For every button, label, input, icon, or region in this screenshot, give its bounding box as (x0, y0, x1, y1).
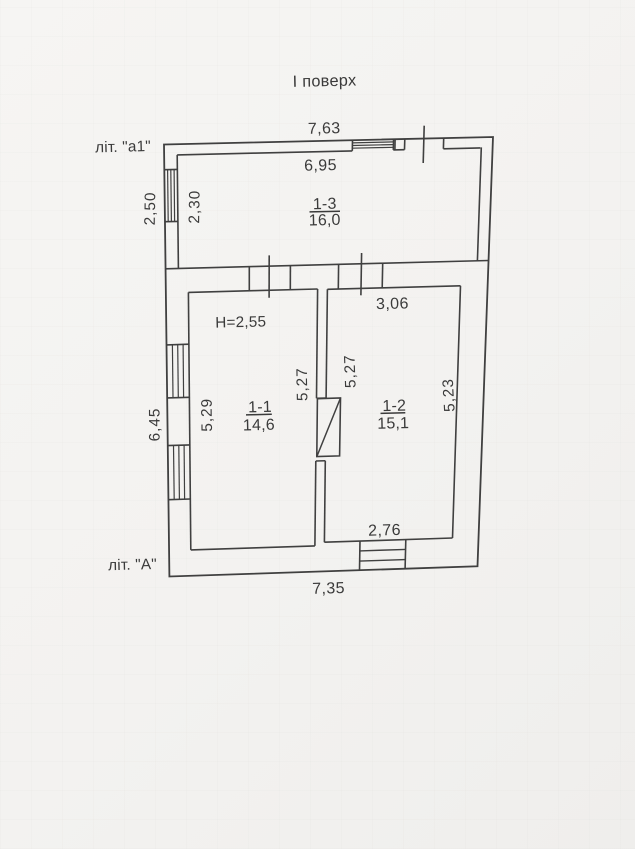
svg-text:3,06: 3,06 (376, 295, 409, 313)
svg-text:І поверх: І поверх (292, 71, 356, 90)
svg-text:15,1: 15,1 (377, 415, 409, 433)
svg-text:2,76: 2,76 (368, 522, 401, 540)
svg-text:5,23: 5,23 (440, 378, 459, 413)
svg-text:2,50: 2,50 (142, 191, 159, 225)
svg-text:5,27: 5,27 (294, 367, 312, 401)
svg-text:5,27: 5,27 (341, 354, 359, 388)
svg-text:6,45: 6,45 (147, 408, 164, 442)
svg-text:7,35: 7,35 (312, 580, 345, 598)
svg-text:16,0: 16,0 (309, 212, 341, 230)
svg-text:літ. "А": літ. "А" (108, 556, 157, 574)
svg-text:7,63: 7,63 (308, 120, 341, 138)
svg-text:Н=2,55: Н=2,55 (215, 313, 266, 331)
svg-text:5,29: 5,29 (199, 398, 216, 432)
svg-text:2,30: 2,30 (186, 190, 203, 224)
svg-text:літ. "а1": літ. "а1" (95, 138, 151, 156)
svg-text:14,6: 14,6 (243, 417, 275, 435)
svg-text:6,95: 6,95 (304, 157, 337, 175)
